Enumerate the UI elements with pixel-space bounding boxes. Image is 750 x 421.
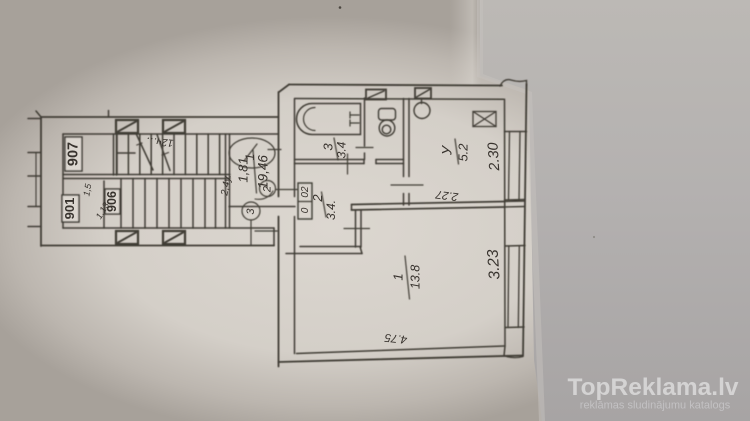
svg-text:12ч.‥: 12ч.‥	[146, 135, 174, 149]
svg-text:reklāmas sludinājumu katalogs: reklāmas sludinājumu katalogs	[580, 400, 731, 412]
svg-text:0: 0	[300, 207, 311, 213]
svg-text:19,46: 19,46	[256, 155, 271, 189]
svg-text:1: 1	[390, 273, 405, 280]
svg-text:2: 2	[310, 194, 325, 203]
svg-text:3: 3	[320, 143, 335, 151]
svg-text:901: 901	[62, 198, 77, 220]
svg-text:13.8: 13.8	[408, 265, 422, 289]
svg-text:3: 3	[245, 208, 257, 215]
svg-text:3.4.: 3.4.	[324, 200, 338, 220]
svg-text:4.75: 4.75	[384, 331, 408, 345]
svg-text:02: 02	[300, 186, 311, 198]
svg-text:2: 2	[261, 186, 273, 193]
svg-text:3.23: 3.23	[485, 249, 504, 281]
svg-text:907: 907	[65, 142, 81, 166]
svg-text:TopReklama.lv: TopReklama.lv	[567, 374, 738, 401]
svg-text:2.30: 2.30	[485, 142, 503, 172]
svg-text:1: 1	[243, 154, 257, 161]
svg-text:5.2: 5.2	[455, 143, 470, 162]
svg-text:3.4: 3.4	[335, 141, 349, 158]
